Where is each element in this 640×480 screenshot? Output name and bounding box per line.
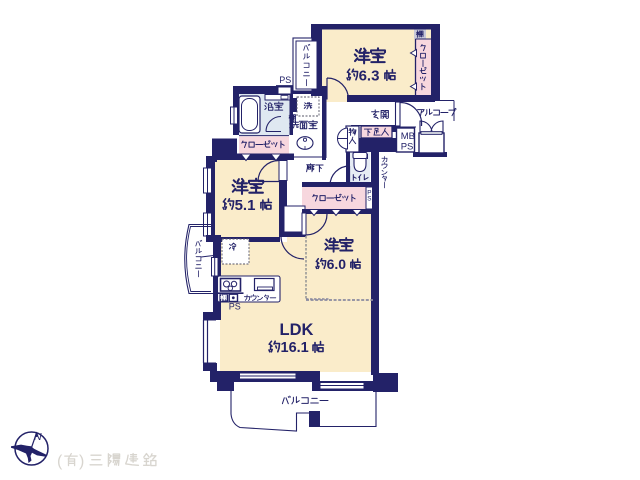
svg-text:MB: MB xyxy=(401,131,415,142)
svg-text:5.1: 5.1 xyxy=(235,197,256,214)
svg-text:6.0: 6.0 xyxy=(327,256,347,272)
svg-text:S: S xyxy=(367,196,371,203)
svg-text:N: N xyxy=(34,431,42,443)
svg-text:PS: PS xyxy=(401,141,414,152)
svg-text:PS: PS xyxy=(229,302,241,312)
svg-text:6.3: 6.3 xyxy=(359,67,380,84)
svg-text:16.1: 16.1 xyxy=(281,340,309,356)
svg-text:PS: PS xyxy=(279,75,291,85)
svg-text:(: ( xyxy=(57,453,63,470)
svg-text:LDK: LDK xyxy=(280,321,314,339)
svg-text:): ) xyxy=(79,453,84,470)
